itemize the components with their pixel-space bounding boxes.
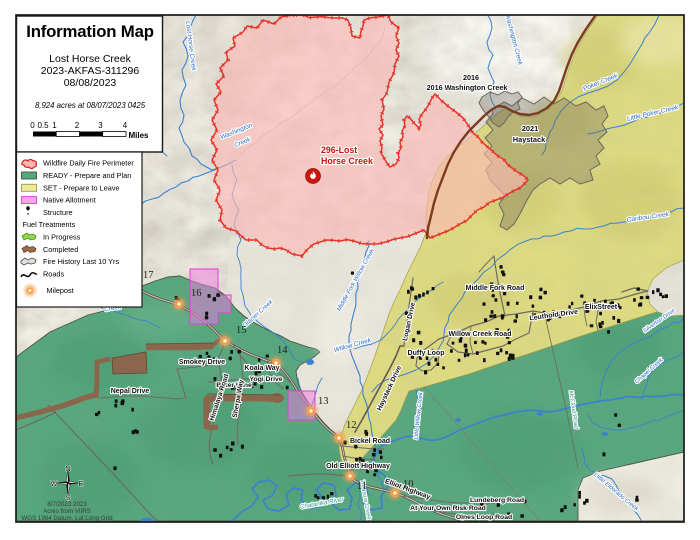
svg-text:4: 4 <box>123 121 128 130</box>
svg-text:READY - Prepare and Plan: READY - Prepare and Plan <box>43 171 131 180</box>
svg-text:2016 Washington Creek: 2016 Washington Creek <box>427 83 508 92</box>
svg-text:Completed: Completed <box>43 245 78 254</box>
svg-text:SET - Prepare to Leave: SET - Prepare to Leave <box>43 183 120 192</box>
svg-text:14: 14 <box>277 345 288 356</box>
svg-text:Lost Horse Creek: Lost Horse Creek <box>49 53 131 65</box>
svg-text:Acres from VIIRS: Acres from VIIRS <box>43 508 91 515</box>
svg-text:Information Map: Information Map <box>26 22 154 41</box>
svg-text:Lundeberg Road: Lundeberg Road <box>470 497 524 504</box>
svg-text:15: 15 <box>236 325 247 336</box>
svg-text:0: 0 <box>30 121 35 130</box>
svg-text:13: 13 <box>318 396 329 407</box>
svg-text:8/7/2023 2023: 8/7/2023 2023 <box>47 501 87 508</box>
svg-text:2: 2 <box>75 121 80 130</box>
svg-text:Native Allotment: Native Allotment <box>43 196 96 205</box>
svg-text:12: 12 <box>346 420 357 431</box>
svg-text:08/08/2023: 08/08/2023 <box>64 77 117 89</box>
svg-text:11: 11 <box>357 481 367 492</box>
svg-text:Haystack: Haystack <box>513 135 546 144</box>
svg-text:N: N <box>65 464 70 473</box>
svg-text:Yogi Drive: Yogi Drive <box>249 376 282 383</box>
svg-text:Koala Way: Koala Way <box>244 365 279 372</box>
svg-text:2023-AKFAS-311296: 2023-AKFAS-311296 <box>41 65 140 77</box>
svg-text:Fire History Last 10 Yrs: Fire History Last 10 Yrs <box>43 257 119 266</box>
svg-text:8,924 acres at 08/07/2023 0425: 8,924 acres at 08/07/2023 0425 <box>35 101 146 110</box>
svg-text:17: 17 <box>143 270 154 281</box>
svg-text:At Your Own Risk Road: At Your Own Risk Road <box>410 505 486 512</box>
svg-text:Nepal Drive: Nepal Drive <box>111 388 150 395</box>
svg-text:Wildfire Daily Fire Perimeter: Wildfire Daily Fire Perimeter <box>43 159 134 168</box>
svg-text:ElixStreet: ElixStreet <box>585 304 618 311</box>
svg-text:Structure: Structure <box>43 208 73 217</box>
svg-text:296-Lost: 296-Lost <box>321 145 357 155</box>
svg-text:16: 16 <box>191 288 202 299</box>
svg-text:1: 1 <box>52 121 57 130</box>
svg-text:2016: 2016 <box>463 73 479 82</box>
svg-text:Willow Creek Road: Willow Creek Road <box>449 331 512 338</box>
svg-text:In Progress: In Progress <box>43 233 81 242</box>
svg-text:0.5: 0.5 <box>37 121 49 130</box>
svg-text:Olnes Loop Road: Olnes Loop Road <box>456 514 512 521</box>
svg-text:Bickel Road: Bickel Road <box>350 438 390 445</box>
svg-text:3: 3 <box>98 121 103 130</box>
svg-text:10: 10 <box>403 479 414 490</box>
svg-text:Roads: Roads <box>43 269 64 278</box>
svg-text:E: E <box>78 479 83 488</box>
svg-text:Miles: Miles <box>129 131 150 140</box>
svg-text:Fuel Treatments: Fuel Treatments <box>23 220 76 229</box>
svg-text:W: W <box>50 479 58 488</box>
svg-text:Horse Creek: Horse Creek <box>321 156 373 166</box>
svg-text:WGS 1984 Datum, Lat:Long Grid: WGS 1984 Datum, Lat:Long Grid <box>21 515 113 522</box>
svg-text:Smokey Drive: Smokey Drive <box>179 359 225 366</box>
svg-text:Old Elliott Highway: Old Elliott Highway <box>326 463 390 470</box>
svg-text:2021: 2021 <box>522 124 538 133</box>
svg-text:Duffy Loop: Duffy Loop <box>408 350 445 357</box>
svg-text:Milepost: Milepost <box>47 286 74 295</box>
svg-text:Middle Fork Road: Middle Fork Road <box>466 285 525 292</box>
